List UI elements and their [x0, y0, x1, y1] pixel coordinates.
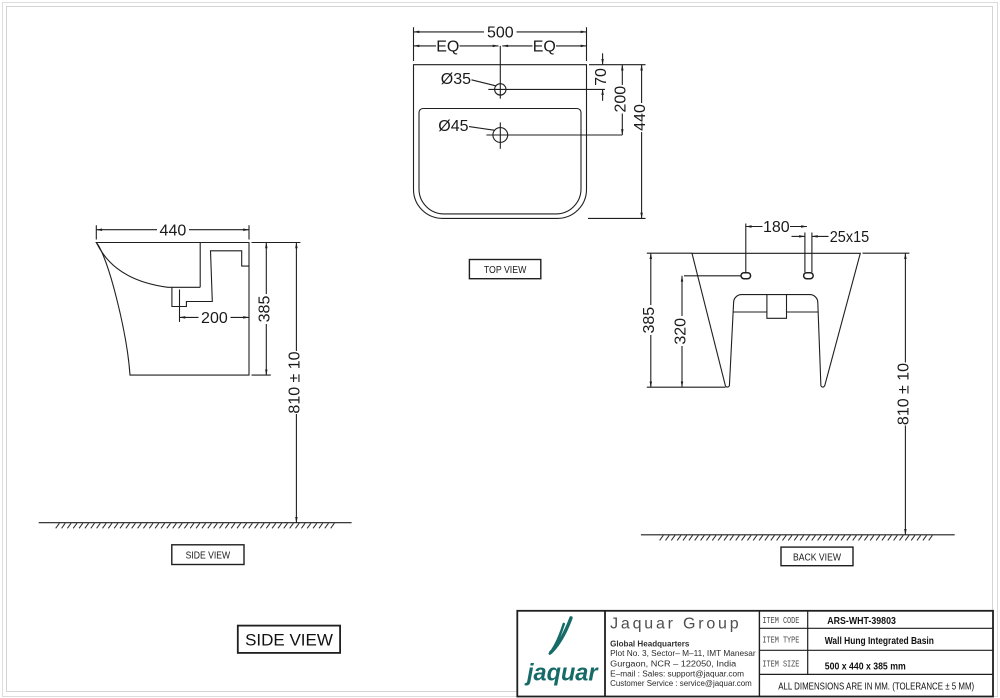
- svg-text:jaquar: jaquar: [524, 660, 599, 687]
- svg-text:Gurgaon, NCR – 122050, India: Gurgaon, NCR – 122050, India: [610, 659, 737, 668]
- svg-text:ITEM CODE: ITEM CODE: [762, 616, 799, 626]
- svg-text:180: 180: [763, 219, 790, 236]
- svg-text:ITEM SIZE: ITEM SIZE: [762, 660, 799, 670]
- svg-text:500 x 440 x 385 mm: 500 x 440 x 385 mm: [825, 660, 906, 672]
- svg-text:200: 200: [201, 310, 228, 327]
- svg-text:70: 70: [593, 68, 610, 86]
- svg-text:ARS-WHT-39803: ARS-WHT-39803: [827, 615, 896, 627]
- svg-text:320: 320: [672, 318, 689, 345]
- svg-text:440: 440: [160, 222, 187, 239]
- svg-text:Plot No. 3, Sector– M–11, IMT: Plot No. 3, Sector– M–11, IMT Manesar: [610, 649, 756, 658]
- svg-text:EQ: EQ: [436, 39, 459, 56]
- svg-text:ALL DIMENSIONS ARE IN MM. (TOL: ALL DIMENSIONS ARE IN MM. (TOLERANCE ± 5…: [778, 680, 974, 692]
- svg-text:TOP VIEW: TOP VIEW: [484, 265, 527, 276]
- svg-text:810 ± 10: 810 ± 10: [287, 351, 304, 413]
- svg-text:BACK VIEW: BACK VIEW: [793, 552, 841, 563]
- svg-text:E–mail : Sales: support@jaquar: E–mail : Sales: support@jaquar.com: [610, 670, 744, 679]
- svg-text:385: 385: [257, 296, 274, 323]
- svg-text:440: 440: [632, 104, 649, 131]
- svg-text:810 ± 10: 810 ± 10: [896, 363, 913, 425]
- svg-text:SIDE VIEW: SIDE VIEW: [186, 550, 231, 561]
- svg-text:200: 200: [613, 86, 630, 113]
- svg-text:Ø45: Ø45: [438, 118, 468, 135]
- svg-text:Wall Hung Integrated Basin: Wall Hung Integrated Basin: [825, 635, 934, 647]
- svg-text:SIDE VIEW: SIDE VIEW: [245, 631, 333, 650]
- svg-text:Global Headquarters: Global Headquarters: [610, 639, 690, 649]
- svg-text:25x15: 25x15: [830, 229, 870, 246]
- svg-text:ITEM TYPE: ITEM TYPE: [762, 636, 799, 646]
- svg-text:500: 500: [487, 25, 514, 42]
- svg-text:EQ: EQ: [533, 39, 556, 56]
- svg-text:385: 385: [641, 307, 658, 334]
- svg-text:Customer Service : service@jaq: Customer Service : service@jaquar.com: [610, 679, 752, 688]
- svg-text:Ø35: Ø35: [441, 71, 471, 88]
